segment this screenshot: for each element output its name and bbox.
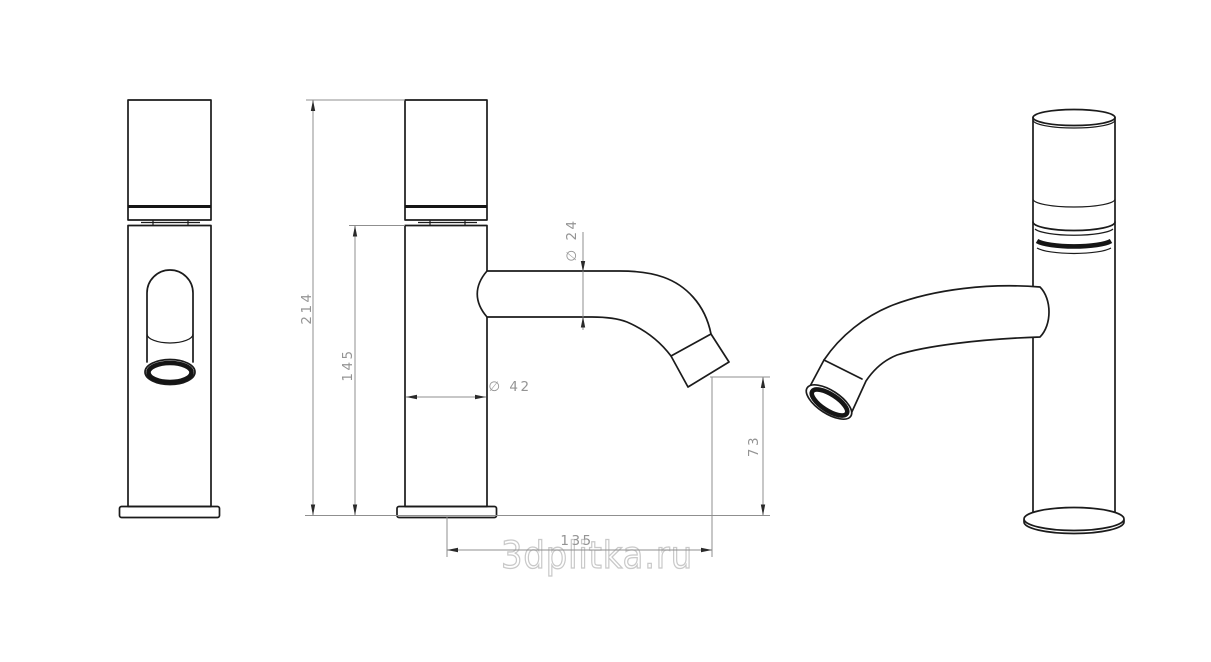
side-handle xyxy=(405,100,487,220)
front-spout xyxy=(145,270,195,385)
front-handle xyxy=(128,100,211,220)
perspective-handle-top xyxy=(1033,110,1115,126)
dim-outlet-height: 73 xyxy=(746,377,765,516)
dim-body-height-label: 145 xyxy=(340,348,356,381)
front-body xyxy=(128,226,211,507)
faucet-technical-drawing: 3dplitka.ru xyxy=(0,0,1211,662)
side-view xyxy=(397,100,729,518)
front-spout-outlet-ring xyxy=(149,363,192,382)
dim-body-diameter-label: ∅ 42 xyxy=(488,379,531,395)
dim-body-diameter: ∅ 42 xyxy=(406,379,532,399)
perspective-spout xyxy=(801,286,1049,426)
perspective-base xyxy=(1024,508,1124,534)
front-base-plate xyxy=(120,507,220,518)
dim-overall-height: 214 xyxy=(299,100,315,516)
side-spout xyxy=(477,271,729,387)
dim-outlet-height-label: 73 xyxy=(746,435,762,457)
watermark-text: 3dplitka.ru xyxy=(501,534,693,577)
perspective-handle-gap-ring xyxy=(1037,241,1111,246)
dim-body-height: 145 xyxy=(340,226,357,516)
side-body xyxy=(405,226,487,507)
dim-spout-diameter-label: ∅ 24 xyxy=(564,218,580,261)
front-view xyxy=(120,100,220,518)
dim-spout-reach-label: 135 xyxy=(560,533,593,549)
perspective-view xyxy=(801,110,1124,534)
dim-overall-height-label: 214 xyxy=(299,291,315,324)
